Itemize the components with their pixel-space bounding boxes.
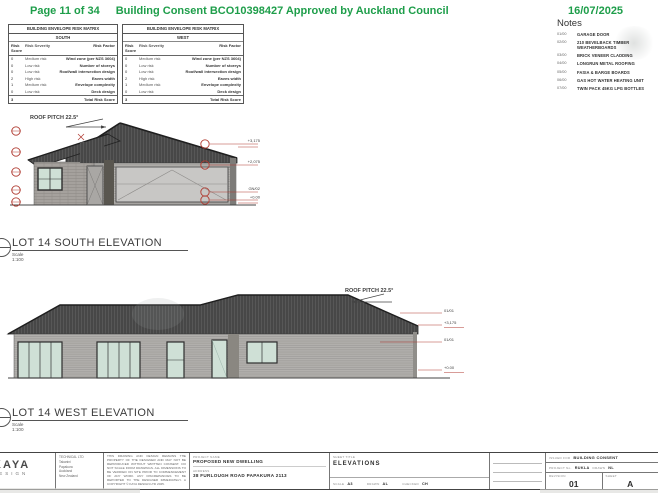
drawn2-value: NL — [608, 466, 614, 470]
scan-edge-artifact — [540, 489, 658, 493]
risk-matrix-title: BUILDING ENVELOPE RISK MATRIX — [123, 25, 243, 34]
risk-matrix-total: 3 Total Risk Score — [123, 95, 243, 103]
section-marker-line — [0, 417, 10, 418]
south-window — [38, 168, 62, 190]
scale-label: SCALE — [333, 482, 344, 486]
west-level-labels: 01/01 +3,175 01/01 +0.00 — [444, 308, 457, 370]
issued-for-label: ISSUED FOR — [549, 456, 570, 460]
table-row: 0 Low risk Roof/wall intersection design — [9, 69, 117, 76]
scan-edge-artifact — [0, 488, 140, 493]
list-item: 02/00 210 BEVELBACK TIMBER WEATHERBOARDS — [557, 40, 657, 51]
west-tall-door — [212, 340, 227, 378]
list-item: 04/00 LONGRUN METAL ROOFING — [557, 61, 657, 67]
table-row: 0 Medium risk Wind zone (per NZS 3604) — [9, 56, 117, 63]
risk-matrix-total: 3 Total Risk Score — [9, 95, 117, 103]
risk-matrix-table-south: BUILDING ENVELOPE RISK MATRIX SOUTH Risk… — [8, 24, 118, 104]
south-elevation-scale: Scale 1:100 — [12, 252, 24, 262]
address-value: 38 FURLOUGH ROAD PAPAKURA 2113 — [193, 473, 326, 478]
issued-for-value: BUILDING CONSENT — [573, 455, 618, 460]
sheet-number-value: A — [606, 479, 656, 489]
risk-matrix-header: Risk Score Risk Severity Risk Factor — [123, 42, 243, 56]
risk-matrix-rows: 0 Medium risk Wind zone (per NZS 3604) 0… — [9, 56, 117, 95]
south-garage-door — [114, 167, 230, 202]
table-row: 1 Medium risk Envelope complexity — [123, 82, 243, 89]
list-item: 03/00 BRICK VENEER CLADDING — [557, 53, 657, 59]
revision-value: 01 — [549, 479, 599, 489]
sheet-meta-row: SCALEA3 DRAWNAL CHECKEDCH — [330, 477, 489, 489]
logo-text: KAYA — [0, 459, 52, 471]
consent-title: Building Consent BCO10398427 Approved by… — [116, 5, 449, 17]
west-elevation-drawing: ROOF PITCH 22.5° 01/01 +3,175 01/01 +0.0… — [0, 282, 470, 400]
col-risk-severity: Risk Severity — [139, 43, 173, 55]
risk-matrix-orientation: WEST — [123, 34, 243, 42]
revision-strip — [490, 453, 546, 489]
section-marker-line — [0, 247, 10, 248]
list-item: 05/00 FASIA & BARGE BOARDS — [557, 70, 657, 76]
page-number-label: Page 11 of 34 — [30, 5, 100, 17]
svg-text:01/01: 01/01 — [444, 337, 455, 342]
logo-subtext: DESIGN — [0, 471, 52, 476]
checked-label: CHECKED — [402, 482, 419, 486]
risk-matrix-header: Risk Score Risk Severity Risk Factor — [9, 42, 117, 56]
contact-lines: TECHNICAL LTDTakaniniPapakuraAucklandNew… — [59, 455, 100, 479]
table-row: 0 Medium risk Wind zone (per NZS 3604) — [123, 56, 243, 63]
col-risk-score: Risk Score — [11, 43, 25, 55]
south-entry-door — [87, 166, 103, 205]
list-item: 07/00 TWIN PACK 45KG LPG BOTTLES — [557, 86, 657, 92]
section-marker-icon — [0, 408, 11, 427]
svg-text:01/01: 01/01 — [444, 308, 455, 313]
notes-panel: Notes 01/00 GARAGE DOOR 02/00 210 BEVELB… — [557, 18, 657, 91]
svg-text:GN/02: GN/02 — [248, 186, 260, 191]
table-row: 0 Low risk Number of storeys — [123, 62, 243, 69]
risk-matrix-table-west: BUILDING ENVELOPE RISK MATRIX WEST Risk … — [122, 24, 244, 104]
south-elevation-drawing: ROOF PITCH 22.5° +3,175 +2,075 — [8, 110, 268, 238]
svg-text:+3,175: +3,175 — [444, 320, 457, 325]
col-risk-severity: Risk Severity — [25, 43, 59, 55]
table-row: 0 Low risk Deck design — [123, 89, 243, 96]
drawn-label: DRAWN — [367, 482, 380, 486]
risk-matrix-orientation: SOUTH — [9, 34, 117, 42]
table-row: 1 Medium risk Envelope complexity — [9, 82, 117, 89]
drawn2-label: DRAWN — [593, 466, 606, 470]
section-marker-icon — [0, 238, 11, 257]
checked-value: CH — [422, 482, 428, 486]
south-entry-pier — [104, 160, 114, 205]
revision-label: REVISION — [549, 474, 599, 478]
west-door-window — [167, 342, 184, 378]
west-corner-board — [413, 332, 417, 378]
list-item: 01/00 GARAGE DOOR — [557, 32, 657, 38]
table-row: 2 High risk Eaves width — [9, 76, 117, 83]
sheet-number-label: SHEET — [606, 474, 656, 478]
svg-text:+0.00: +0.00 — [250, 195, 261, 200]
scale-value: A3 — [347, 482, 352, 486]
revision-row — [493, 455, 542, 464]
designer-logo: KAYA DESIGN — [0, 453, 56, 489]
designer-contact: TECHNICAL LTDTakaniniPapakuraAucklandNew… — [56, 453, 104, 489]
list-item: 06/00 GAS HOT WATER HEATING UNIT — [557, 78, 657, 84]
notes-heading: Notes — [557, 18, 657, 29]
consent-date: 16/07/2025 — [568, 5, 623, 17]
sheet-fields: SHEET TITLE ELEVATIONS SCALEA3 DRAWNAL C… — [330, 453, 490, 489]
risk-matrix-rows: 0 Medium risk Wind zone (per NZS 3604) 0… — [123, 56, 243, 95]
sheet-title-label: SHEET TITLE — [333, 455, 486, 459]
revision-row — [493, 473, 542, 482]
south-roof-pitch-label: ROOF PITCH 22.5° — [30, 115, 78, 121]
drawing-sheet: Page 11 of 34Building Consent BCO1039842… — [0, 0, 658, 493]
col-risk-score: Risk Score — [125, 43, 139, 55]
sheet-title-value: ELEVATIONS — [333, 461, 486, 467]
disclaimer-block: THIS DRAWING AND DESIGN REMAINS THE PROP… — [104, 453, 190, 489]
col-risk-factor: Risk Factor — [59, 43, 115, 55]
svg-text:+0.00: +0.00 — [444, 365, 455, 370]
west-sliding-door-2 — [97, 342, 140, 378]
col-risk-factor: Risk Factor — [173, 43, 241, 55]
svg-text:+3,175: +3,175 — [248, 138, 261, 143]
issue-fields: ISSUED FOR BUILDING CONSENT PROJECT No. … — [546, 453, 658, 489]
table-row: 0 Low risk Roof/wall intersection design — [123, 69, 243, 76]
west-sliding-door-1 — [18, 342, 62, 378]
consent-header: Page 11 of 34Building Consent BCO1039842… — [30, 5, 465, 17]
project-no-label: PROJECT No. — [549, 466, 572, 470]
south-elevation-title: LOT 14 SOUTH ELEVATION — [12, 237, 188, 251]
title-block: KAYA DESIGN TECHNICAL LTDTakaniniPapakur… — [0, 452, 658, 490]
south-gable-end-cladding — [80, 142, 104, 163]
west-elevation-scale: Scale 1:100 — [12, 422, 24, 432]
project-no-value: RUKLA — [575, 466, 590, 470]
west-elevation-title: LOT 14 WEST ELEVATION — [12, 407, 188, 421]
disclaimer-text: THIS DRAWING AND DESIGN REMAINS THE PROP… — [107, 455, 186, 487]
revision-row — [493, 464, 542, 473]
contact-line: New Zealand — [59, 474, 100, 479]
west-roof-pitch-label: ROOF PITCH 22.5° — [345, 288, 393, 294]
notes-list: 01/00 GARAGE DOOR 02/00 210 BEVELBACK TI… — [557, 32, 657, 92]
west-window-pair — [247, 342, 277, 363]
svg-text:+2,075: +2,075 — [248, 159, 261, 164]
project-name-value: PROPOSED NEW DWELLING — [193, 459, 326, 464]
risk-matrix-title: BUILDING ENVELOPE RISK MATRIX — [9, 25, 117, 34]
west-recess-shadow — [228, 334, 239, 378]
table-row: 0 Low risk Number of storeys — [9, 62, 117, 69]
table-row: 0 Low risk Deck design — [9, 89, 117, 96]
table-row: 2 High risk Eaves width — [123, 76, 243, 83]
project-fields: PROJECT NAME PROPOSED NEW DWELLING ADDRE… — [190, 453, 330, 489]
scan-smudge — [132, 298, 184, 330]
drawn-value: AL — [383, 482, 389, 486]
